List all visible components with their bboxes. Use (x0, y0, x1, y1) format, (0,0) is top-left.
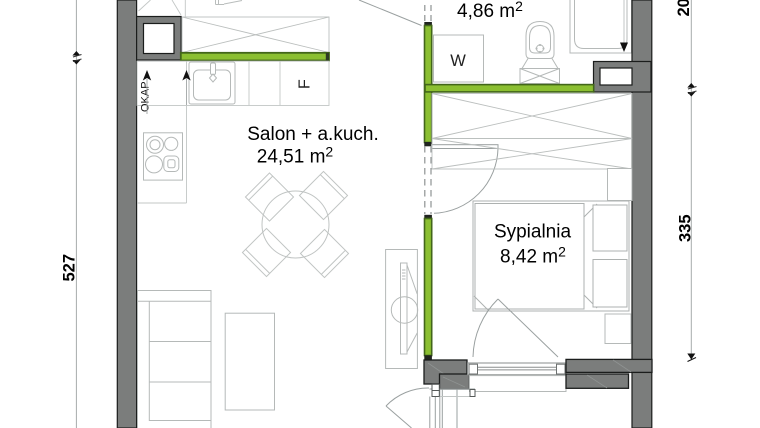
svg-text:Salon + a.kuch.: Salon + a.kuch. (247, 124, 379, 145)
svg-text:8,42 m2: 8,42 m2 (500, 244, 566, 268)
svg-text:20: 20 (675, 0, 693, 17)
svg-text:OKAP: OKAP (140, 81, 152, 112)
svg-text:527: 527 (61, 254, 79, 282)
svg-text:4,86 m2: 4,86 m2 (457, 0, 523, 22)
svg-text:Sypialnia: Sypialnia (494, 222, 572, 243)
svg-text:F: F (297, 79, 314, 89)
svg-text:24,51 m2: 24,51 m2 (257, 144, 334, 168)
svg-text:W: W (450, 52, 466, 70)
svg-text:335: 335 (677, 214, 695, 242)
